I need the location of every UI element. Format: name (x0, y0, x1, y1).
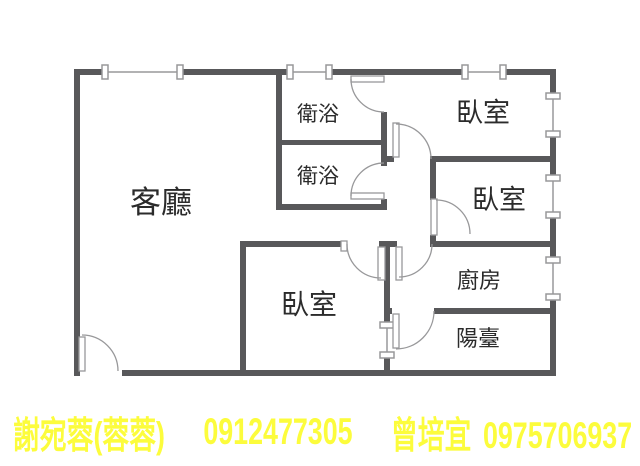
agent1-phone: 0912477305 (203, 411, 352, 453)
window-bedroom3-balcony (380, 322, 394, 358)
window-bathroom-top (287, 65, 332, 79)
floor-plan: 客廳 衛浴 衛浴 臥室 臥室 臥室 廚房 陽臺 (0, 0, 640, 461)
agent1-name: 謝宛蓉(蓉蓉) (13, 405, 165, 459)
contact-bar: 謝宛蓉(蓉蓉) 0912477305 曾培宜0975706937 (13, 408, 632, 456)
window-living-top (102, 65, 183, 79)
room-label-balcony: 陽臺 (456, 326, 500, 351)
doors (79, 76, 470, 371)
door-bedroom2 (431, 199, 470, 235)
room-label-living-room: 客廳 (130, 185, 192, 220)
door-bedroom1 (393, 123, 431, 159)
door-bedroom3 (341, 241, 385, 280)
room-label-kitchen: 廚房 (457, 268, 501, 293)
window-bedroom2-right (546, 175, 560, 218)
window-kitchen-right (546, 257, 560, 300)
floor-plan-drawing: 客廳 衛浴 衛浴 臥室 臥室 臥室 廚房 陽臺 (0, 0, 640, 461)
door-balcony (393, 311, 434, 349)
room-label-bedroom-3: 臥室 (281, 289, 337, 320)
room-label-bathroom-2: 衛浴 (297, 165, 339, 188)
agent2-contact: 曾培宜0975706937 (391, 405, 632, 459)
door-bathroom2 (351, 163, 384, 199)
door-entry (79, 335, 118, 371)
agent2-name: 曾培宜 (391, 415, 471, 456)
door-kitchen (396, 244, 432, 280)
agent2-phone: 0975706937 (483, 415, 632, 456)
door-bathroom1 (351, 76, 384, 112)
room-label-bathroom-1: 衛浴 (297, 103, 339, 126)
room-label-bedroom-2: 臥室 (472, 185, 526, 215)
window-bedroom1-right (546, 93, 560, 137)
room-label-bedroom-1: 臥室 (456, 98, 510, 128)
window-bedroom1-top (462, 65, 506, 79)
